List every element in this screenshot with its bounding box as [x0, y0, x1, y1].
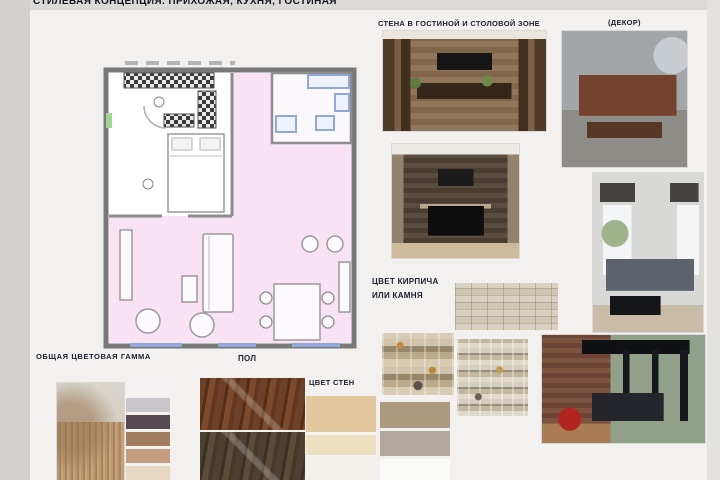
- title-bar: СТИЛЕВАЯ КОНЦЕПЦИЯ. ПРИХОЖАЯ, КУХНЯ, ГОС…: [0, 0, 720, 10]
- swatch-palette-color: [126, 398, 170, 412]
- photo-fireplace-wall: [392, 144, 519, 258]
- swatch-palette-color: [126, 449, 170, 463]
- left-margin: [0, 0, 30, 480]
- swatch-wall-color: [306, 458, 376, 480]
- photo-tv-wall-living-room: [383, 31, 546, 131]
- swatch-floor-wood-1: [200, 378, 305, 430]
- swatch-brick-texture: [455, 283, 558, 330]
- swatch-wall-color: [380, 431, 450, 456]
- photo-brown-leather-sofa: [562, 31, 687, 167]
- page-title: СТИЛЕВАЯ КОНЦЕПЦИЯ. ПРИХОЖАЯ, КУХНЯ, ГОС…: [33, 0, 337, 7]
- plan-room-tag: [154, 97, 164, 107]
- swatch-wall-color: [306, 396, 376, 432]
- swatch-palette-color: [126, 381, 170, 395]
- floor-plan: [102, 64, 358, 352]
- swatch-floor-wood-2: [200, 432, 305, 480]
- label-brick-line1: ЦВЕТ КИРПИЧА: [372, 277, 439, 286]
- swatch-palette-color: [126, 415, 170, 429]
- label-floor: ПОЛ: [238, 354, 256, 363]
- plan-bed: [168, 134, 224, 212]
- mood-board: СТИЛЕВАЯ КОНЦЕПЦИЯ. ПРИХОЖАЯ, КУХНЯ, ГОС…: [0, 0, 720, 480]
- swatch-wall-color: [380, 459, 450, 480]
- swatch-wall-color: [306, 435, 376, 455]
- photo-grey-sofa-living-room: [593, 173, 703, 332]
- right-margin: [707, 0, 720, 480]
- photo-dry-grass-field: [57, 383, 124, 480]
- label-brick-line2: ИЛИ КАМНЯ: [372, 291, 423, 300]
- label-wall-zone: СТЕНА В ГОСТИНОЙ И СТОЛОВОЙ ЗОНЕ: [378, 19, 540, 28]
- swatch-palette-color: [126, 432, 170, 446]
- plan-entry-door: [106, 113, 112, 128]
- swatch-stone-texture-2: [457, 339, 528, 416]
- swatch-palette-color: [126, 466, 170, 480]
- plan-room-tag: [143, 179, 153, 189]
- swatch-stone-texture-1: [382, 333, 454, 395]
- label-walls: ЦВЕТ СТЕН: [309, 378, 355, 387]
- photo-loft-interior: [542, 335, 705, 443]
- swatch-wall-color: [380, 402, 450, 428]
- label-decor: (ДЕКОР): [608, 18, 641, 27]
- label-palette: ОБЩАЯ ЦВЕТОВАЯ ГАММА: [36, 352, 151, 361]
